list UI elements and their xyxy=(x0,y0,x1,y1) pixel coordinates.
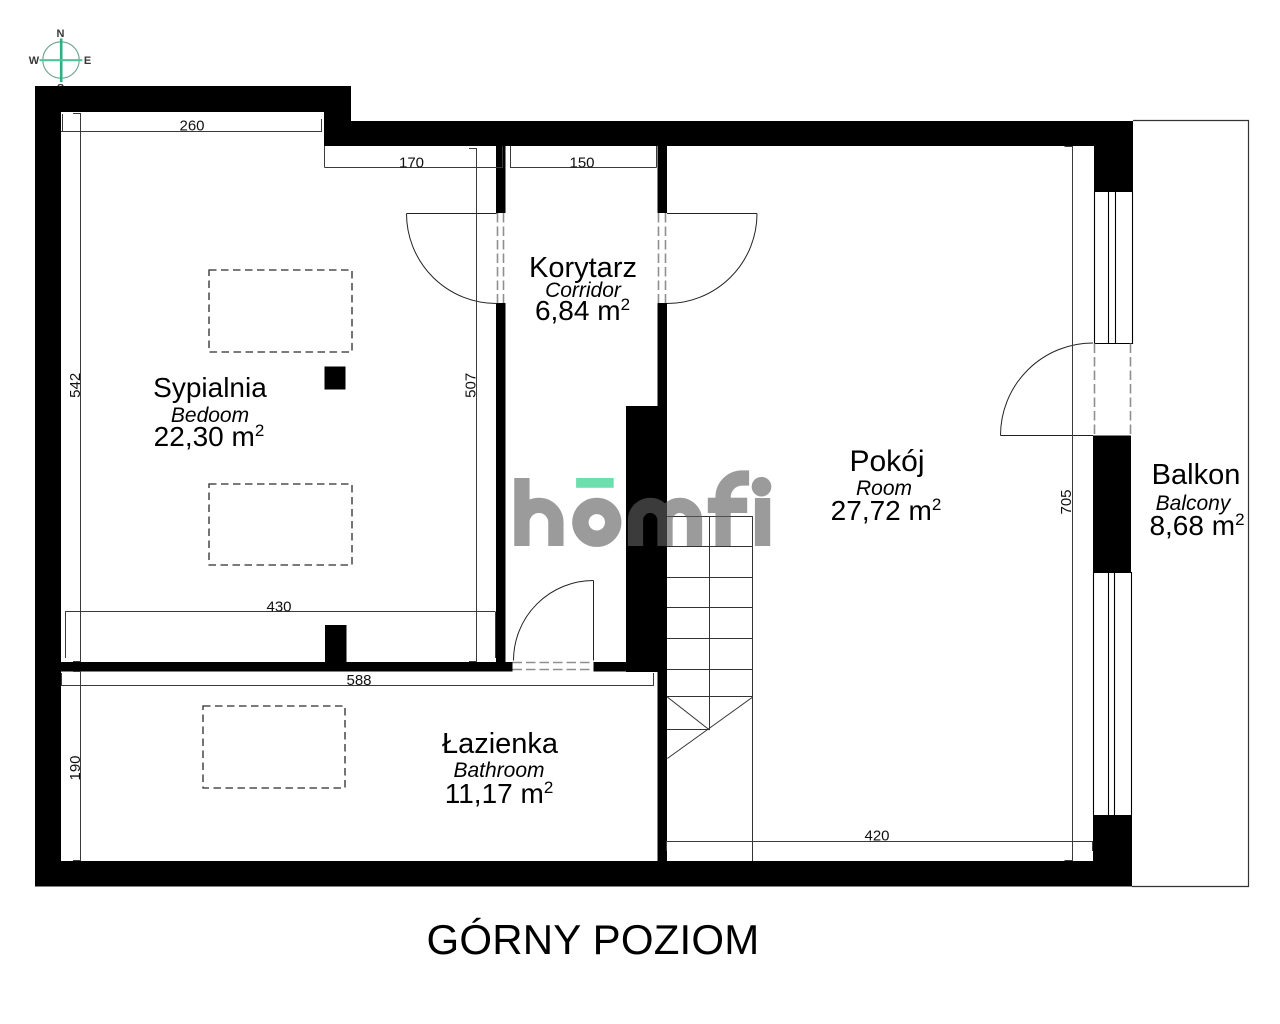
svg-text:E: E xyxy=(84,55,91,67)
svg-text:705: 705 xyxy=(1058,489,1075,514)
svg-text:430: 430 xyxy=(266,599,291,616)
svg-text:Pokój: Pokój xyxy=(849,445,924,478)
svg-text:542: 542 xyxy=(67,373,84,398)
svg-text:420: 420 xyxy=(864,828,889,845)
svg-text:GÓRNY POZIOM: GÓRNY POZIOM xyxy=(427,916,760,963)
svg-text:8,68 m2: 8,68 m2 xyxy=(1149,510,1244,541)
svg-text:N: N xyxy=(57,28,65,40)
svg-text:260: 260 xyxy=(179,118,204,135)
svg-text:27,72 m2: 27,72 m2 xyxy=(831,495,942,526)
svg-text:190: 190 xyxy=(67,755,84,780)
svg-text:Sypialnia: Sypialnia xyxy=(153,372,267,403)
svg-text:170: 170 xyxy=(399,155,424,172)
svg-text:Łazienka: Łazienka xyxy=(442,728,559,760)
svg-text:588: 588 xyxy=(346,672,371,689)
svg-text:6,84 m2: 6,84 m2 xyxy=(535,295,630,326)
svg-text:Balkon: Balkon xyxy=(1152,459,1241,491)
svg-text:W: W xyxy=(29,55,40,67)
svg-text:22,30 m2: 22,30 m2 xyxy=(154,421,265,452)
svg-text:150: 150 xyxy=(569,155,594,172)
svg-text:507: 507 xyxy=(463,373,480,398)
svg-text:11,17 m2: 11,17 m2 xyxy=(445,778,554,809)
